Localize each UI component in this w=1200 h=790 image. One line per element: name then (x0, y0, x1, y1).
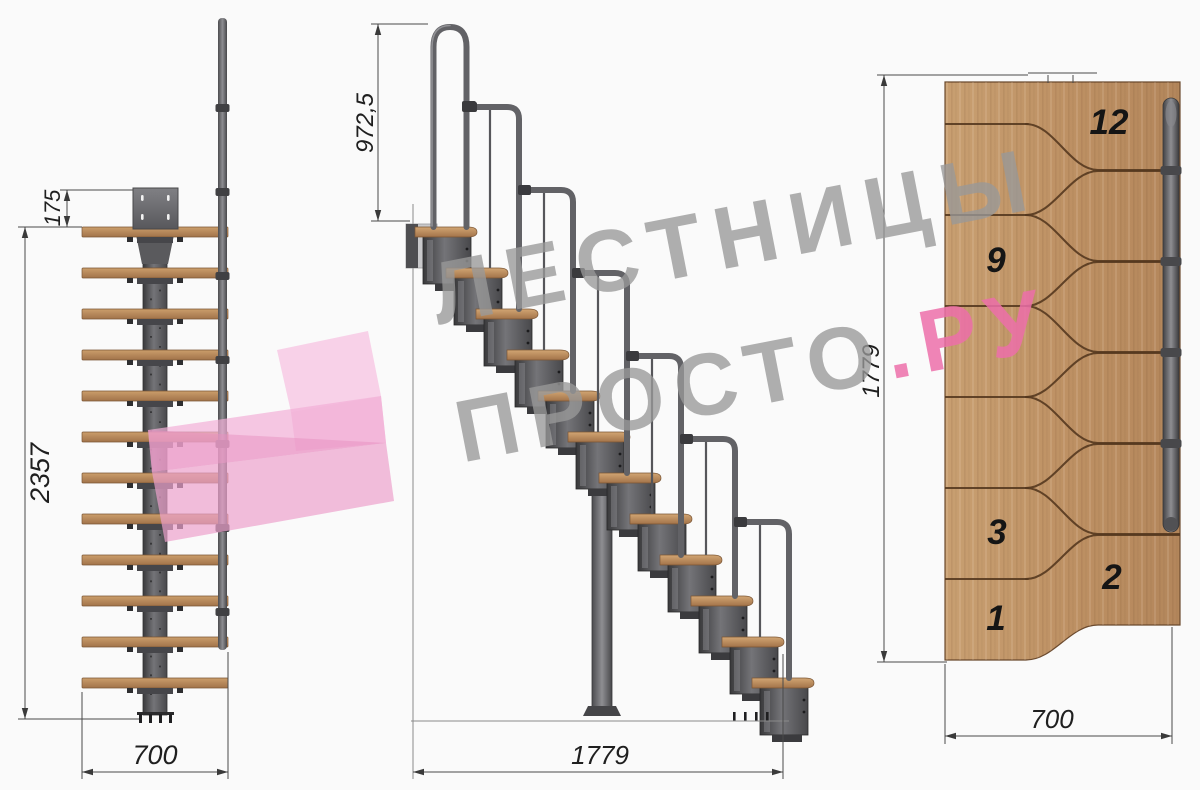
dim-label-972-5: 972,5 (352, 92, 379, 153)
dimension-2357: 2357 (22, 227, 55, 719)
dim-label-700-front: 700 (132, 740, 177, 770)
step-number-12: 12 (1090, 103, 1129, 142)
dim-label-175: 175 (40, 189, 65, 226)
wood-grain (945, 82, 1180, 660)
step-number-1: 1 (986, 599, 1005, 638)
dimension-972-5: 972,5 (352, 24, 428, 221)
handrail-post (218, 18, 227, 650)
staircase-technical-drawing: 175 2357 700 (0, 0, 1200, 790)
handrail-plan (1161, 98, 1182, 532)
column-base-feet (137, 712, 174, 723)
dimension-175: 175 (40, 189, 133, 227)
support-column-base (583, 706, 621, 716)
step-number-2: 2 (1101, 558, 1122, 597)
dim-label-2357: 2357 (25, 442, 55, 504)
side-view: 972,5 1779 (352, 24, 814, 779)
stair-modules (415, 227, 814, 742)
step-number-9: 9 (986, 241, 1006, 280)
drawing-canvas: 175 2357 700 (0, 0, 1200, 790)
step-number-3: 3 (987, 513, 1007, 552)
dim-label-700-plan: 700 (1030, 704, 1074, 734)
dim-label-1779-side: 1779 (571, 740, 629, 770)
wall-mount-plate (133, 188, 178, 229)
front-view: 175 2357 700 (18, 18, 230, 779)
plan-view: 12 9 3 2 1 1779 (858, 73, 1182, 744)
dim-label-1779-plan: 1779 (858, 344, 885, 397)
